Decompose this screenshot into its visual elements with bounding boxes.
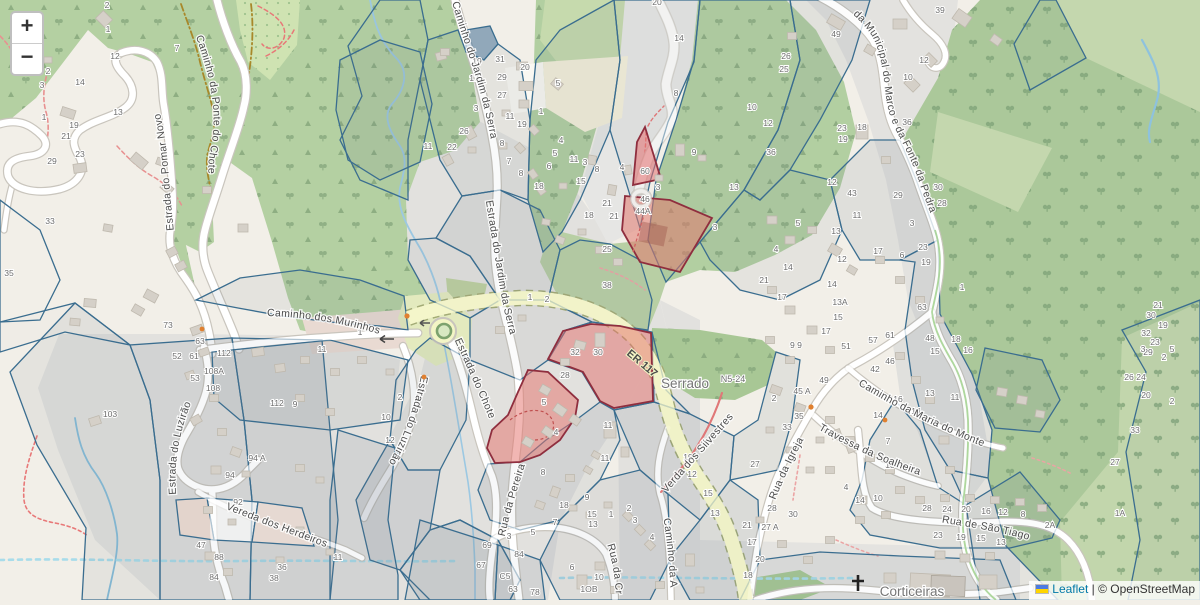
svg-text:11: 11: [334, 552, 343, 562]
svg-text:21: 21: [602, 198, 612, 208]
svg-text:4: 4: [844, 482, 849, 492]
svg-text:3: 3: [1141, 344, 1146, 354]
svg-text:9: 9: [692, 147, 697, 157]
svg-text:19: 19: [956, 532, 966, 542]
svg-text:15: 15: [576, 176, 586, 186]
svg-text:3: 3: [40, 80, 45, 90]
svg-text:20: 20: [520, 62, 530, 72]
svg-text:10: 10: [594, 572, 604, 582]
svg-text:13: 13: [831, 226, 841, 236]
svg-text:13: 13: [710, 508, 720, 518]
svg-text:10: 10: [747, 102, 757, 112]
svg-text:31: 31: [495, 54, 505, 64]
svg-text:36: 36: [902, 117, 912, 127]
svg-text:1: 1: [539, 106, 544, 116]
svg-text:13: 13: [588, 519, 598, 529]
svg-text:5: 5: [796, 218, 801, 228]
svg-text:11: 11: [853, 210, 862, 220]
svg-text:Serrado: Serrado: [661, 376, 709, 391]
svg-text:29: 29: [893, 190, 903, 200]
svg-text:26: 26: [781, 51, 791, 61]
svg-text:32: 32: [570, 347, 580, 357]
svg-text:30: 30: [788, 509, 798, 519]
svg-text:33: 33: [782, 422, 792, 432]
svg-text:28: 28: [922, 503, 932, 513]
svg-text:5: 5: [556, 78, 561, 88]
svg-text:10: 10: [381, 412, 391, 422]
svg-text:15: 15: [833, 312, 843, 322]
svg-text:18: 18: [559, 500, 569, 510]
svg-text:48: 48: [925, 333, 935, 343]
svg-text:18: 18: [857, 122, 867, 132]
svg-text:43: 43: [847, 188, 857, 198]
svg-text:29: 29: [497, 72, 507, 82]
svg-text:2: 2: [545, 294, 550, 304]
svg-text:39: 39: [935, 5, 945, 15]
svg-text:23: 23: [75, 149, 85, 159]
svg-text:38: 38: [269, 573, 279, 583]
svg-text:23: 23: [933, 530, 943, 540]
svg-text:51: 51: [841, 341, 851, 351]
svg-text:36: 36: [277, 562, 287, 572]
svg-text:5: 5: [553, 148, 558, 158]
svg-text:1: 1: [528, 292, 533, 302]
svg-text:1: 1: [609, 509, 614, 519]
svg-text:4: 4: [774, 244, 779, 254]
svg-text:2: 2: [627, 503, 632, 513]
svg-text:12: 12: [385, 435, 395, 445]
svg-text:17: 17: [873, 246, 883, 256]
svg-text:63: 63: [195, 336, 205, 346]
svg-text:25: 25: [602, 244, 612, 254]
svg-text:6: 6: [900, 250, 905, 260]
svg-text:Corticeiras: Corticeiras: [880, 584, 945, 599]
svg-text:10: 10: [903, 72, 913, 82]
svg-text:30: 30: [933, 182, 943, 192]
svg-text:29: 29: [47, 156, 57, 166]
svg-text:1OB: 1OB: [580, 584, 597, 594]
svg-text:12: 12: [763, 118, 773, 128]
svg-text:4: 4: [554, 427, 559, 437]
svg-text:28: 28: [560, 370, 570, 380]
svg-text:5: 5: [542, 397, 547, 407]
svg-text:69: 69: [482, 540, 492, 550]
svg-text:112: 112: [217, 348, 231, 358]
svg-text:3: 3: [633, 515, 638, 525]
svg-text:84: 84: [514, 549, 524, 559]
svg-text:11: 11: [570, 154, 579, 164]
svg-text:94 A: 94 A: [248, 453, 265, 463]
svg-text:2: 2: [398, 392, 403, 402]
svg-text:23: 23: [837, 123, 847, 133]
svg-text:53: 53: [190, 373, 200, 383]
svg-text:7: 7: [886, 436, 891, 446]
svg-text:2: 2: [772, 393, 777, 403]
svg-text:20: 20: [652, 0, 662, 7]
svg-text:6: 6: [570, 562, 575, 572]
svg-text:35: 35: [794, 411, 804, 421]
svg-text:46: 46: [885, 356, 895, 366]
svg-text:23: 23: [1150, 337, 1160, 347]
svg-text:11: 11: [601, 453, 610, 463]
svg-text:4: 4: [559, 135, 564, 145]
svg-text:15: 15: [976, 533, 986, 543]
svg-text:5: 5: [531, 527, 536, 537]
svg-text:3: 3: [583, 157, 588, 167]
svg-text:13: 13: [996, 537, 1006, 547]
svg-text:57: 57: [868, 335, 878, 345]
svg-text:19: 19: [1158, 320, 1168, 330]
svg-text:88: 88: [214, 552, 224, 562]
svg-text:20: 20: [961, 504, 971, 514]
svg-text:6: 6: [547, 161, 552, 171]
svg-text:44A: 44A: [635, 206, 651, 216]
svg-text:21: 21: [609, 211, 619, 221]
svg-text:21: 21: [759, 275, 769, 285]
svg-text:108A: 108A: [204, 366, 224, 376]
svg-text:19: 19: [838, 134, 848, 144]
svg-text:63: 63: [508, 584, 518, 594]
svg-text:12: 12: [837, 254, 847, 264]
svg-text:8: 8: [500, 138, 505, 148]
svg-text:20: 20: [1141, 390, 1151, 400]
svg-text:103: 103: [103, 409, 118, 419]
svg-text:14: 14: [873, 410, 883, 420]
svg-text:2: 2: [1162, 352, 1167, 362]
svg-text:30: 30: [593, 347, 603, 357]
svg-text:2A: 2A: [1045, 520, 1056, 530]
svg-text:18: 18: [584, 210, 594, 220]
svg-text:4: 4: [650, 532, 655, 542]
svg-text:73: 73: [163, 320, 173, 330]
svg-text:9: 9: [293, 399, 298, 409]
svg-text:8: 8: [595, 164, 600, 174]
svg-text:8: 8: [541, 467, 546, 477]
svg-text:11: 11: [951, 392, 960, 402]
svg-text:18: 18: [534, 181, 544, 191]
svg-text:3: 3: [656, 182, 661, 192]
svg-text:14: 14: [783, 262, 793, 272]
svg-text:27: 27: [750, 459, 760, 469]
svg-text:1: 1: [42, 112, 47, 122]
svg-text:10: 10: [873, 493, 883, 503]
svg-text:14: 14: [75, 77, 85, 87]
svg-text:52: 52: [172, 351, 182, 361]
svg-text:25: 25: [779, 64, 789, 74]
svg-text:78: 78: [530, 587, 540, 597]
svg-text:2: 2: [105, 0, 110, 10]
svg-text:49: 49: [819, 375, 829, 385]
svg-text:33: 33: [1130, 425, 1140, 435]
svg-text:9 9: 9 9: [790, 340, 802, 350]
svg-text:15: 15: [703, 488, 713, 498]
svg-text:24: 24: [942, 504, 952, 514]
svg-text:11: 11: [424, 141, 433, 151]
svg-text:30: 30: [1146, 310, 1156, 320]
svg-text:2: 2: [1170, 396, 1175, 406]
svg-text:33: 33: [45, 216, 55, 226]
svg-text:12: 12: [919, 55, 929, 65]
svg-text:27: 27: [497, 90, 507, 100]
svg-text:20: 20: [755, 554, 765, 564]
svg-text:3: 3: [910, 218, 915, 228]
svg-text:49: 49: [831, 29, 841, 39]
svg-text:35: 35: [4, 268, 14, 278]
svg-text:47: 47: [196, 540, 206, 550]
svg-text:26: 26: [1124, 372, 1134, 382]
svg-text:23: 23: [918, 242, 928, 252]
svg-text:27: 27: [1110, 457, 1120, 467]
svg-text:7: 7: [553, 517, 558, 527]
svg-text:61: 61: [189, 351, 199, 361]
svg-text:36: 36: [766, 147, 776, 157]
svg-text:15: 15: [587, 509, 597, 519]
svg-text:N5-24: N5-24: [721, 374, 746, 384]
svg-text:C5: C5: [500, 571, 511, 581]
svg-text:19: 19: [517, 119, 527, 129]
svg-text:45 A: 45 A: [793, 386, 810, 396]
svg-text:14: 14: [855, 495, 865, 505]
svg-text:60: 60: [640, 166, 650, 176]
svg-text:84: 84: [209, 572, 219, 582]
svg-text:1A: 1A: [1115, 508, 1126, 518]
svg-text:14: 14: [827, 279, 837, 289]
svg-text:61: 61: [885, 330, 895, 340]
svg-text:13: 13: [925, 388, 935, 398]
svg-text:17: 17: [777, 292, 787, 302]
svg-text:12: 12: [998, 507, 1008, 517]
svg-text:12: 12: [827, 177, 837, 187]
svg-text:21: 21: [1153, 300, 1163, 310]
svg-text:13A: 13A: [832, 297, 848, 307]
svg-text:67: 67: [476, 560, 486, 570]
svg-text:8: 8: [519, 168, 524, 178]
svg-text:28: 28: [767, 503, 777, 513]
svg-text:11: 11: [318, 344, 327, 354]
svg-text:13: 13: [729, 182, 739, 192]
svg-text:19: 19: [921, 257, 931, 267]
svg-text:15: 15: [930, 346, 940, 356]
svg-text:26: 26: [459, 126, 469, 136]
svg-text:16: 16: [963, 345, 973, 355]
svg-text:21: 21: [742, 520, 752, 530]
svg-text:14: 14: [674, 33, 684, 43]
svg-text:8: 8: [674, 88, 679, 98]
svg-text:3: 3: [474, 103, 479, 113]
svg-text:5: 5: [1170, 344, 1175, 354]
svg-text:8: 8: [1021, 509, 1026, 519]
svg-text:1: 1: [960, 282, 965, 292]
svg-text:94: 94: [225, 470, 235, 480]
svg-text:17: 17: [821, 326, 831, 336]
svg-text:18: 18: [951, 334, 961, 344]
svg-text:7: 7: [507, 156, 512, 166]
svg-text:46: 46: [640, 194, 650, 204]
svg-text:4: 4: [620, 162, 625, 172]
svg-text:42: 42: [870, 364, 880, 374]
svg-text:38: 38: [602, 280, 612, 290]
svg-text:17: 17: [747, 537, 757, 547]
svg-text:28: 28: [937, 198, 947, 208]
svg-text:11: 11: [604, 420, 613, 430]
svg-text:9: 9: [585, 492, 590, 502]
svg-text:18: 18: [743, 570, 753, 580]
svg-text:108: 108: [206, 383, 221, 393]
svg-text:12: 12: [110, 51, 120, 61]
svg-text:16: 16: [981, 506, 991, 516]
svg-text:13: 13: [113, 107, 123, 117]
svg-text:7: 7: [175, 43, 180, 53]
svg-text:22: 22: [447, 142, 457, 152]
svg-text:24: 24: [1136, 372, 1146, 382]
svg-text:63: 63: [917, 302, 927, 312]
svg-text:21: 21: [61, 131, 71, 141]
svg-text:11: 11: [506, 111, 515, 121]
svg-text:2: 2: [46, 66, 51, 76]
svg-text:3: 3: [713, 222, 718, 232]
svg-text:27 A: 27 A: [761, 522, 778, 532]
svg-text:112: 112: [270, 398, 284, 408]
svg-text:19: 19: [69, 120, 79, 130]
svg-text:1: 1: [106, 24, 111, 34]
